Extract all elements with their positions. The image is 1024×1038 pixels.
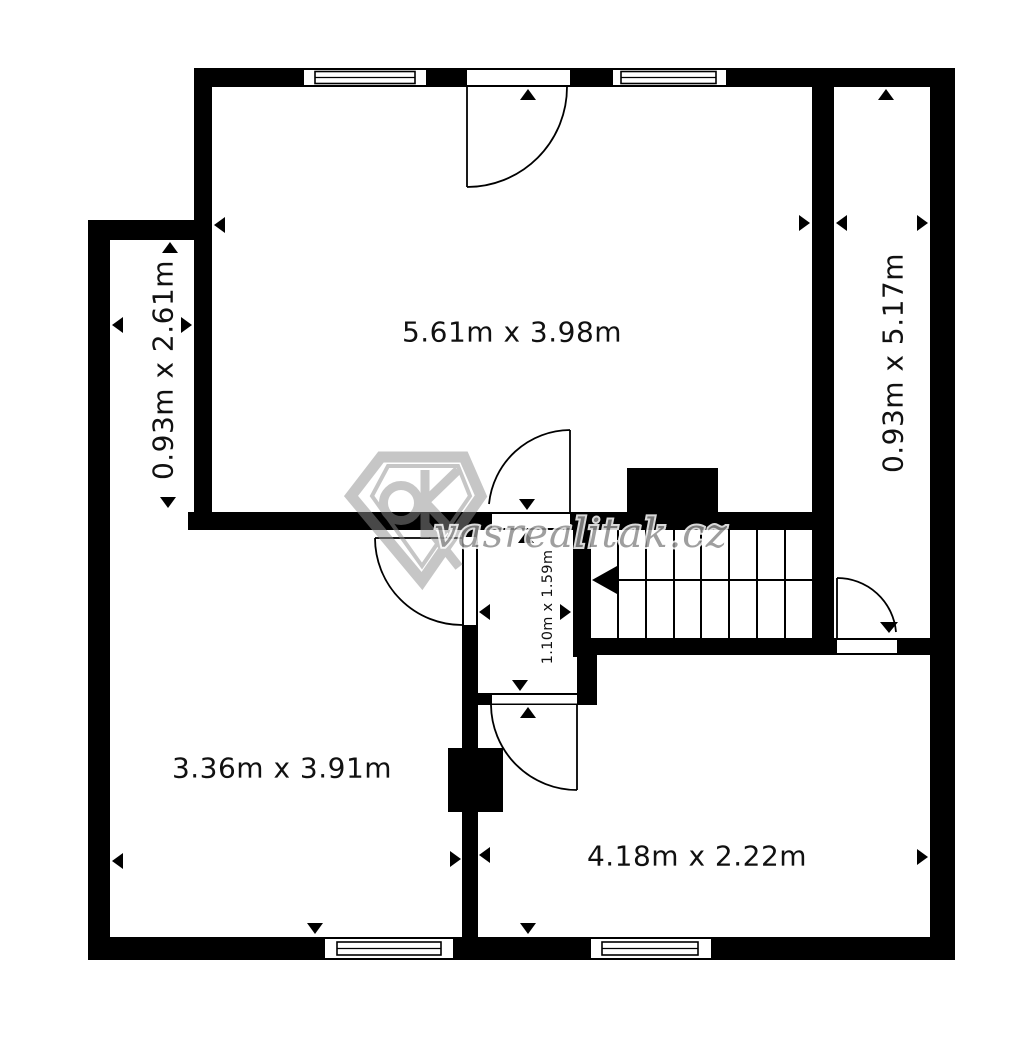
dimension-arrow-left: [479, 604, 490, 620]
dimension-arrow-right: [560, 604, 571, 620]
dimension-arrow-right: [917, 849, 928, 865]
room-label-top: 5.61m x 3.98m: [402, 316, 622, 349]
dimension-arrow-right: [181, 317, 192, 333]
dimension-arrow-right: [450, 851, 461, 867]
door-threshold-hall-left: [464, 537, 476, 625]
room-label-left: 0.93m x 2.61m: [147, 260, 180, 480]
door-threshold-right-room: [837, 640, 897, 653]
wall-left-inner: [194, 68, 212, 512]
window-bottom-right: [591, 939, 711, 958]
dimension-arrow-down: [160, 497, 176, 508]
wall-divider-right: [812, 87, 834, 655]
floor-plan-drawing: [0, 0, 1024, 1038]
window-top-right: [613, 70, 726, 85]
door-threshold-top: [467, 70, 570, 85]
dimension-arrow-up: [162, 242, 178, 253]
dimension-arrow-left: [836, 215, 847, 231]
dimension-arrow-left: [112, 853, 123, 869]
staircase: [590, 530, 812, 638]
dimension-arrow-right: [799, 215, 810, 231]
room-label-bottom-right: 4.18m x 2.22m: [587, 840, 807, 873]
dimension-arrow-up: [518, 532, 534, 543]
dimension-arrow-left: [112, 317, 123, 333]
dimension-arrow-down: [512, 680, 528, 691]
dimension-arrow-up: [520, 707, 536, 718]
room-label-bottom-left: 3.36m x 3.91m: [172, 752, 392, 785]
dimension-arrow-down: [519, 499, 535, 510]
dimension-arrow-down: [307, 923, 323, 934]
dimension-arrow-up: [520, 89, 536, 100]
door-swing-top: [467, 87, 567, 187]
chimney-block-top: [627, 468, 718, 514]
stair-direction-arrow: [592, 566, 617, 594]
window-bottom-left: [325, 939, 453, 958]
floor-plan-canvas: 5.61m x 3.98m 0.93m x 2.61m 0.93m x 5.17…: [0, 0, 1024, 1038]
door-swing-right-room: [837, 578, 898, 638]
door-swing-hall-left: [375, 538, 462, 625]
wall-hall-right: [573, 512, 590, 657]
window-top-left: [304, 70, 426, 85]
dimension-arrows: [112, 89, 928, 934]
dimension-arrow-right: [917, 215, 928, 231]
room-label-right: 0.93m x 5.17m: [877, 253, 910, 473]
door-threshold-hall-top: [492, 514, 570, 528]
dimension-arrow-left: [479, 847, 490, 863]
wall-left-outer: [88, 220, 110, 960]
chimney-block-bottom: [448, 748, 503, 812]
dimension-arrow-up: [878, 89, 894, 100]
dimension-arrow-left: [214, 217, 225, 233]
wall-bottom: [88, 937, 955, 960]
door-threshold-hall-bottom: [492, 695, 577, 704]
room-label-hall: 1.10m x 1.59m: [540, 550, 556, 665]
dimension-arrow-down: [520, 923, 536, 934]
wall-right-outer: [930, 68, 955, 960]
